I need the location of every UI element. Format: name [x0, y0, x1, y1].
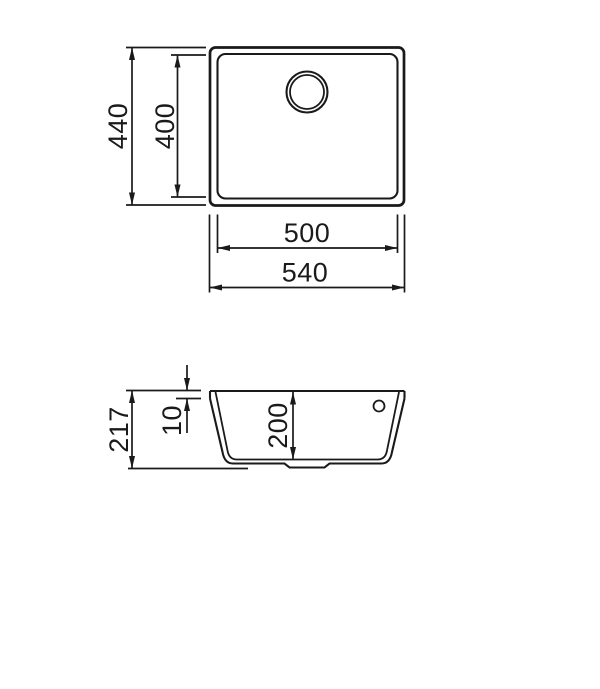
dim-bowl-depth: 200: [263, 392, 293, 460]
dim-rim-height: 10: [157, 365, 201, 436]
dim-inner-height: 400: [150, 55, 206, 197]
dim-inner-width: 500: [218, 215, 398, 254]
drain-hole-inner: [290, 75, 324, 109]
section-view: 217 10 200: [104, 365, 405, 469]
dim-label-total-height: 217: [104, 406, 134, 453]
sink-dimension-drawing: 440 400 500 540: [0, 0, 600, 689]
bowl-inner-wall: [216, 392, 400, 460]
dim-label-inner-height: 400: [150, 103, 180, 150]
technical-drawing-page: 440 400 500 540: [0, 0, 600, 689]
overflow-hole: [374, 401, 385, 412]
dim-label-bowl-depth: 200: [263, 402, 293, 449]
top-view: 440 400 500 540: [103, 48, 405, 293]
dim-label-outer-width: 540: [282, 258, 329, 288]
drain-hole-outer: [287, 72, 328, 113]
dim-label-outer-height: 440: [103, 103, 133, 150]
dim-label-inner-width: 500: [284, 218, 331, 248]
dim-label-rim-height: 10: [157, 405, 187, 436]
